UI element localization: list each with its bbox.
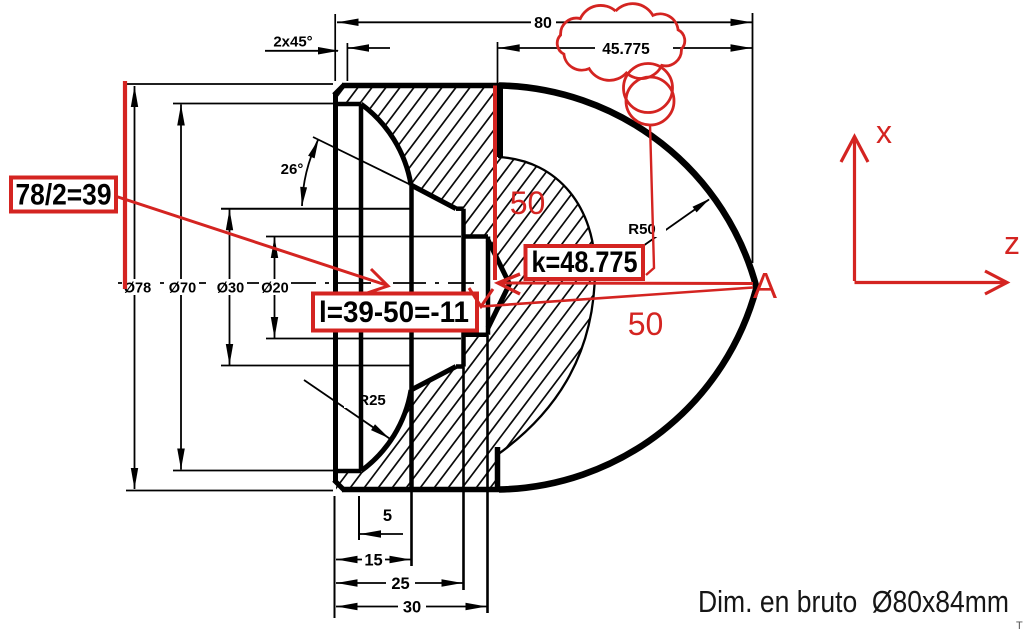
svg-text:2x45°: 2x45° [273, 34, 312, 51]
svg-text:80: 80 [534, 15, 552, 32]
svg-text:Dim. en bruto Ø80x84mm: Dim. en bruto Ø80x84mm [698, 584, 1009, 619]
svg-text:k=48.775: k=48.775 [532, 246, 638, 279]
svg-text:30: 30 [403, 599, 421, 617]
svg-text:l=39-50=-11: l=39-50=-11 [319, 296, 469, 329]
svg-text:Ø70: Ø70 [169, 281, 196, 297]
svg-text:26°: 26° [281, 161, 304, 178]
svg-text:25: 25 [391, 575, 409, 593]
svg-text:x: x [876, 114, 892, 150]
svg-text:Ø30: Ø30 [217, 281, 244, 297]
svg-text:5: 5 [383, 507, 392, 525]
svg-text:z: z [1004, 225, 1020, 261]
svg-text:T: T [1016, 620, 1023, 632]
svg-text:A: A [753, 265, 777, 306]
svg-text:15: 15 [364, 552, 382, 570]
svg-text:Ø20: Ø20 [261, 281, 288, 297]
svg-text:50: 50 [510, 185, 546, 221]
svg-text:45.775: 45.775 [602, 41, 650, 58]
svg-text:Ø78: Ø78 [124, 281, 151, 297]
svg-text:78/2=39: 78/2=39 [16, 179, 112, 212]
svg-text:50: 50 [628, 306, 664, 342]
